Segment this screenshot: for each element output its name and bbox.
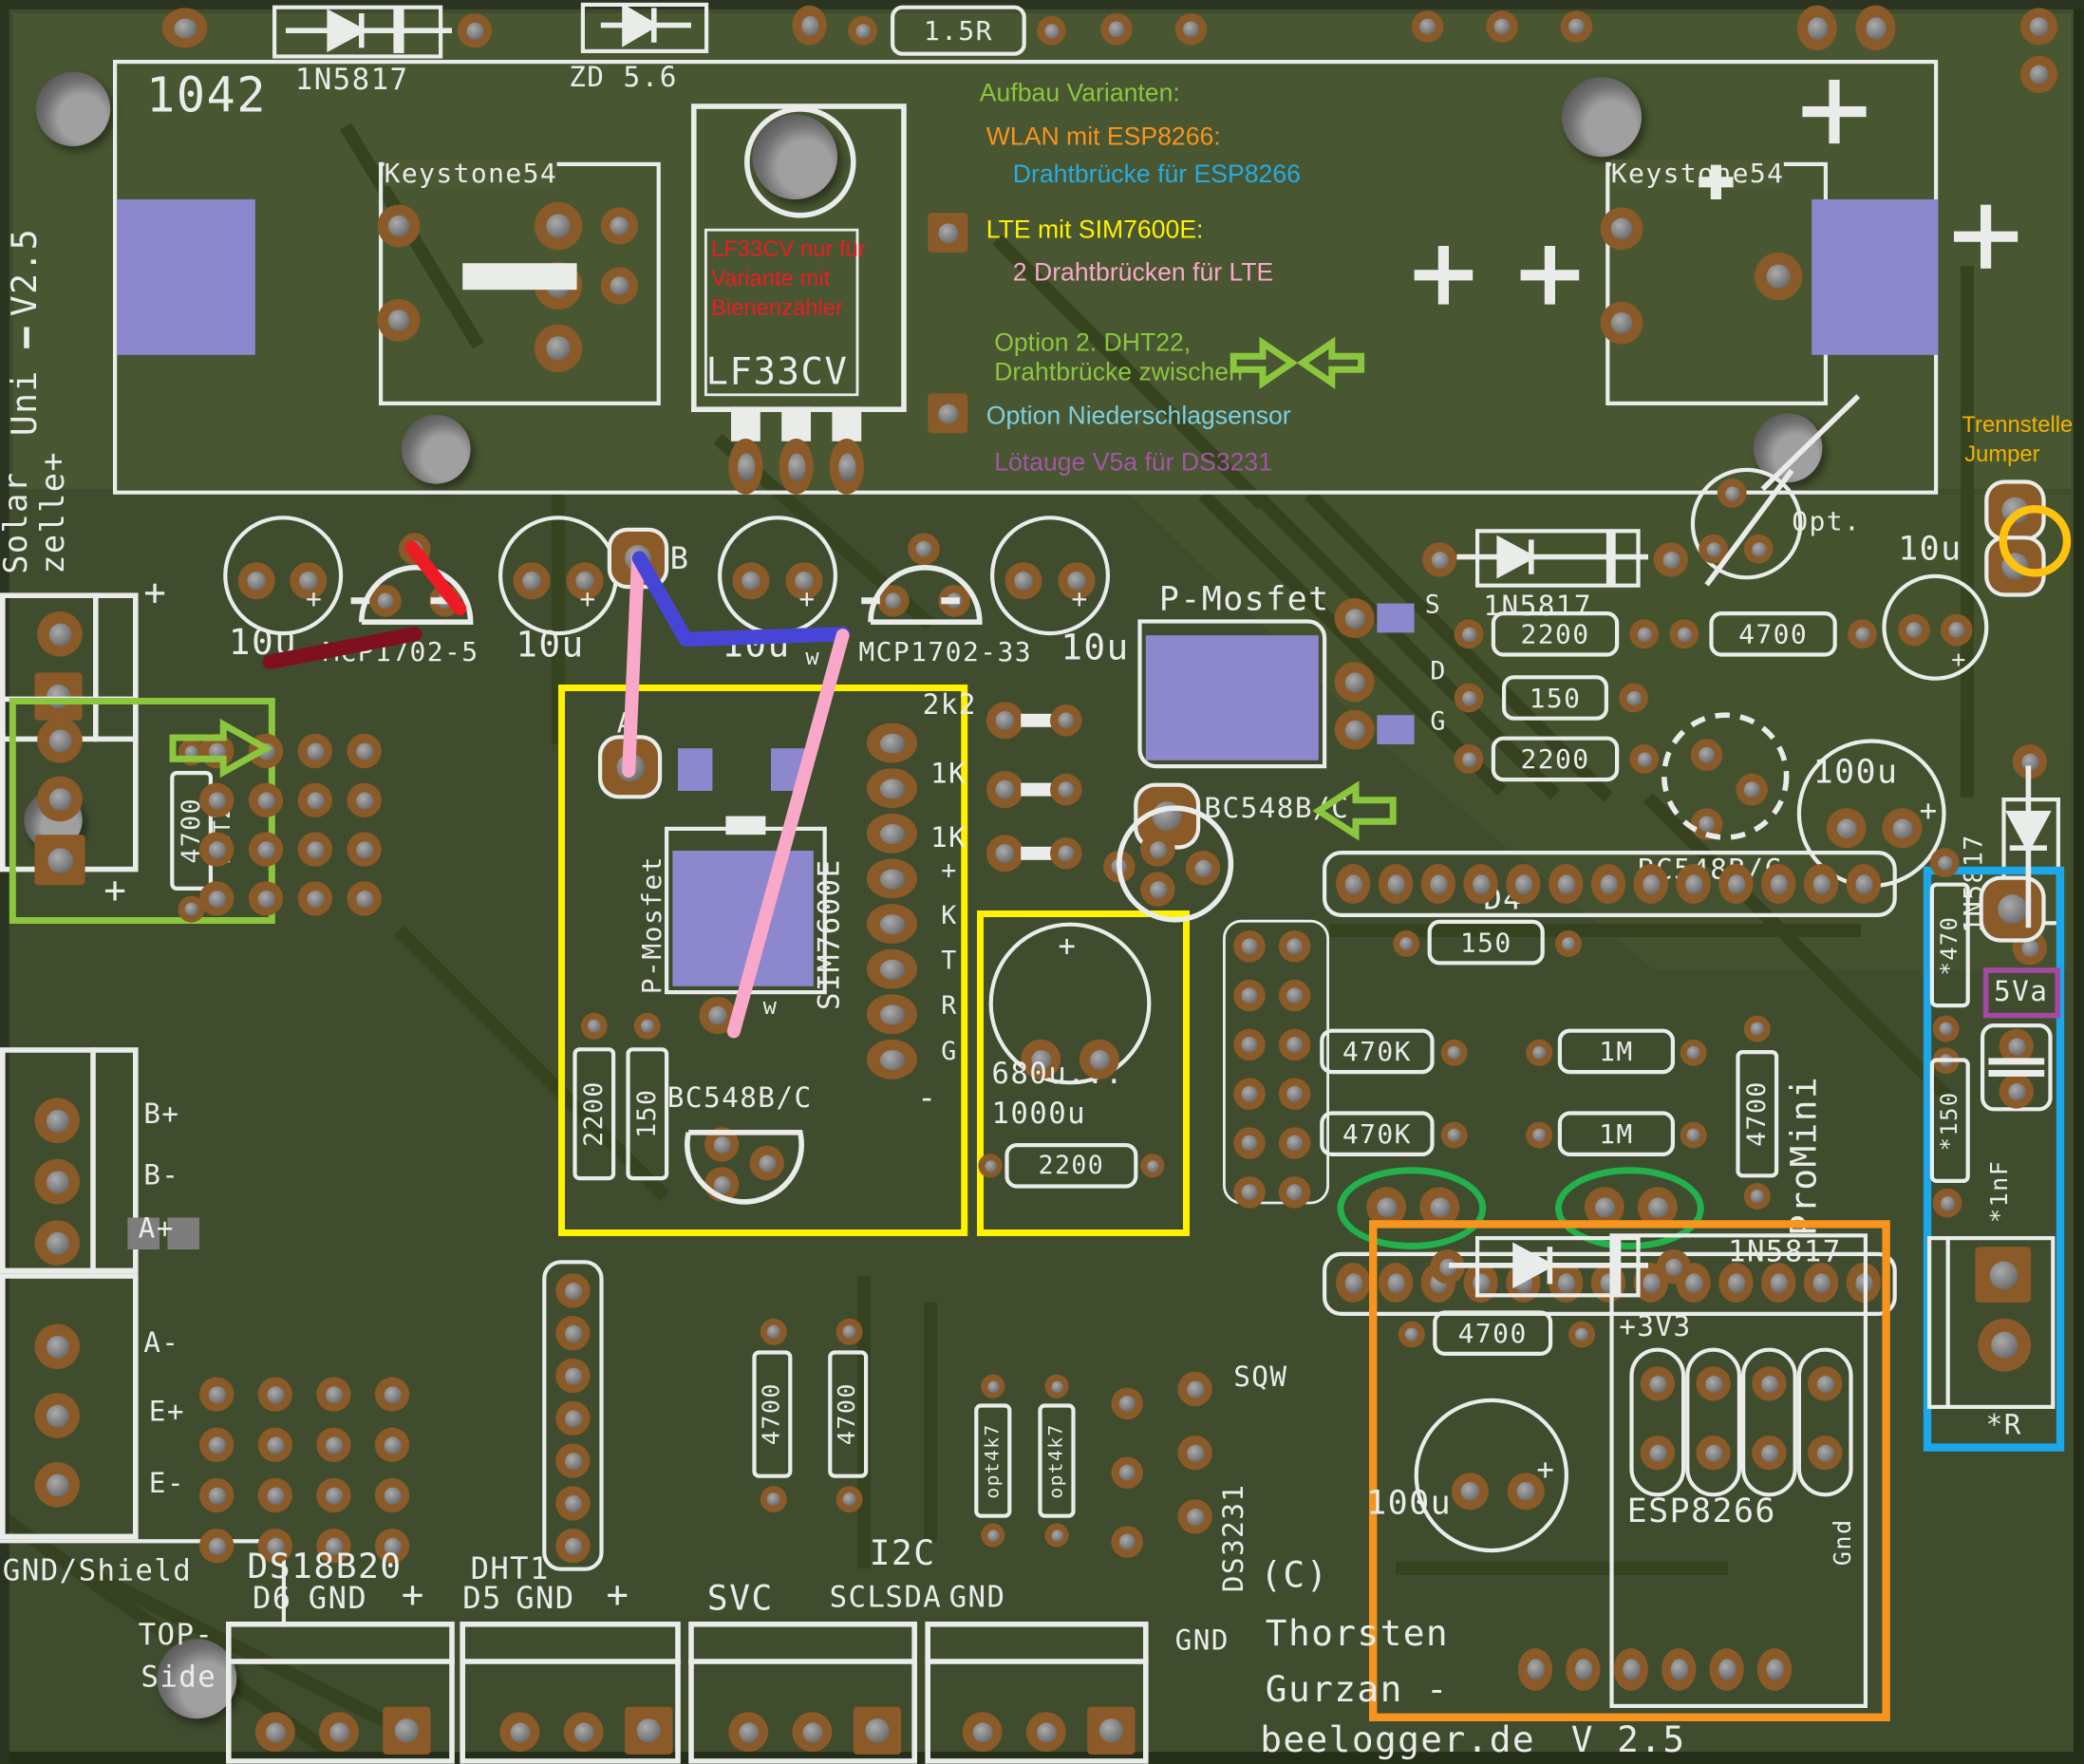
pad	[867, 814, 917, 854]
cap-plus: +	[1071, 585, 1088, 611]
cap-plus: +	[1536, 1456, 1555, 1486]
pad	[908, 533, 940, 565]
pad	[1336, 864, 1370, 904]
copyright-name1: Thorsten	[1266, 1616, 1449, 1652]
resistor-4700: 4700	[1433, 1310, 1552, 1356]
r1k-label: 1K	[930, 760, 967, 788]
svc-label: SVC	[707, 1582, 774, 1616]
pad	[1044, 1523, 1068, 1547]
pad	[1336, 1263, 1370, 1303]
pad	[1601, 207, 1643, 250]
pad	[555, 1359, 590, 1393]
sim-pin-g: G	[941, 1040, 957, 1065]
resistor-label: 4700	[1738, 621, 1808, 647]
pad	[1680, 1040, 1707, 1066]
diode-outline	[581, 3, 708, 53]
resistor-4700-v: 4700	[752, 1350, 792, 1477]
pad	[1393, 930, 1419, 957]
pad	[1752, 1366, 1786, 1400]
pad	[1744, 1016, 1771, 1042]
pad	[2000, 1074, 2034, 1108]
pad	[1761, 864, 1795, 904]
pad	[378, 299, 421, 342]
pad	[1412, 10, 1444, 43]
pad	[399, 533, 431, 565]
resistor-label: 2200	[1039, 1154, 1105, 1179]
pad	[1680, 1122, 1707, 1149]
pad	[1662, 1648, 1696, 1691]
bc548-label-2: BC548B/C	[1204, 795, 1349, 822]
solder-pad-a	[602, 739, 658, 795]
lf33cv-hole	[752, 114, 837, 199]
sim-pin-plus: +	[941, 858, 957, 884]
pad	[258, 1377, 292, 1411]
sda-label: SDA	[885, 1585, 942, 1614]
pad	[1933, 1189, 1962, 1218]
resistor-label: 150	[1530, 685, 1582, 711]
pad	[704, 1127, 739, 1161]
pad	[1455, 619, 1484, 648]
pad	[535, 325, 582, 372]
lf33cv-note-line3: Bienenzähler	[711, 295, 843, 322]
pad	[555, 1316, 590, 1350]
plus-mark	[1699, 165, 1733, 199]
pad	[1186, 851, 1220, 885]
pad	[347, 832, 381, 866]
solar-label: Solar	[0, 462, 32, 574]
pad	[34, 1323, 80, 1369]
pad	[1641, 1366, 1675, 1400]
resistor-2200: 2200	[1492, 611, 1619, 657]
pad	[316, 1478, 350, 1512]
pcb-board: 1.5R 1042 1N5817 ZD 5.6 Keystone54 LF33C…	[0, 0, 2084, 1764]
pad	[1103, 851, 1136, 883]
opt-label: Opt.	[1792, 508, 1861, 535]
pad	[836, 1486, 863, 1512]
keystone-right-label: Keystone54	[1611, 160, 1785, 186]
pad	[760, 1319, 787, 1345]
pad	[258, 1478, 292, 1512]
resistor-150-v: 150	[626, 1047, 668, 1180]
board-name-uni: Uni	[8, 356, 42, 436]
pad	[978, 1154, 1002, 1177]
pad	[928, 393, 967, 433]
resistor-label: 150	[635, 1089, 661, 1138]
pad	[986, 771, 1023, 808]
pad	[867, 949, 917, 989]
pad	[1752, 1436, 1786, 1470]
resistor-2200: 2200	[1492, 737, 1619, 782]
annotation-trennstelle: Trennstelle	[1962, 412, 2073, 439]
pad	[1755, 253, 1802, 300]
pad	[1882, 808, 1922, 848]
pad	[1808, 1366, 1842, 1400]
resistor-label: opt4k7	[1047, 1423, 1066, 1498]
cap-plus: +	[798, 585, 816, 611]
pad	[1629, 619, 1659, 648]
r1k-label: 1K	[930, 824, 967, 852]
pad	[555, 1443, 590, 1477]
terminal-divider	[688, 1659, 917, 1664]
pad	[981, 1375, 1004, 1398]
top-side-label-1: TOP-	[139, 1622, 215, 1651]
pad	[1279, 1078, 1311, 1110]
diode-outline	[1475, 529, 1641, 588]
annotation-loetauge: Lötauge V5a für DS3231	[994, 449, 1272, 479]
pad	[1037, 16, 1066, 46]
pad	[1549, 864, 1583, 904]
pad	[375, 1428, 409, 1462]
plus-mark	[1802, 80, 1866, 143]
pad	[1736, 774, 1768, 806]
pad	[37, 611, 83, 657]
pad	[1140, 872, 1174, 906]
pad	[728, 1712, 768, 1752]
annotation-option-dht22: Option 2. DHT22,	[994, 329, 1191, 359]
pad	[1718, 864, 1753, 904]
cap-plus: +	[1920, 798, 1939, 827]
pad	[1452, 1473, 1489, 1510]
v5a-label: 5Va	[1994, 978, 2048, 1005]
ds18b20-label: DS18B20	[247, 1549, 402, 1584]
smd-component	[1812, 199, 1938, 355]
resistor-1r5: 1.5R	[891, 6, 1026, 56]
d5-plus-label: +	[606, 1576, 629, 1613]
pad	[199, 832, 234, 866]
pad	[347, 881, 381, 915]
annotation-lte: LTE mit SIM7600E:	[986, 216, 1204, 246]
board-number: 1042	[146, 73, 267, 121]
resistor-label: 2200	[1520, 745, 1589, 772]
pad	[1855, 6, 1895, 51]
resistor-label: 150	[1460, 929, 1512, 956]
pad	[1111, 1456, 1143, 1489]
pad	[1050, 774, 1082, 806]
pad	[1279, 930, 1311, 963]
pad	[34, 1462, 80, 1508]
pad	[2013, 744, 2047, 779]
plus-mark	[1521, 246, 1580, 305]
cap-label-10u: 10u	[229, 625, 297, 661]
pad	[513, 562, 550, 599]
scl-label: SCL	[830, 1585, 887, 1614]
pad	[1100, 13, 1133, 46]
pad	[1975, 1247, 2031, 1303]
pad	[1526, 1040, 1552, 1066]
pad	[249, 783, 283, 817]
annotation-wlan: WLAN mit ESP8266:	[986, 123, 1221, 153]
pad	[1279, 1127, 1311, 1159]
pad	[1641, 1436, 1675, 1470]
label-e-minus: E-	[149, 1470, 185, 1497]
smd-component	[1377, 604, 1414, 633]
pad	[499, 1712, 539, 1752]
diode-label: 1N5817	[295, 66, 409, 96]
opt-cap-outline	[1691, 468, 1803, 580]
cap-label-10u: 10u	[1061, 630, 1129, 666]
zelle-label: zelle+	[37, 452, 69, 574]
pad	[1175, 13, 1208, 46]
diode-outline	[1475, 1236, 1641, 1297]
smd-component	[1377, 715, 1414, 744]
pad	[2020, 56, 2057, 93]
resistor-label: 2200	[582, 1080, 608, 1147]
pad-a-label: A	[617, 710, 635, 738]
plus-mark	[1954, 205, 2018, 269]
diode-outline	[272, 6, 442, 59]
pad	[1619, 684, 1648, 713]
pad	[728, 439, 762, 495]
pad	[1555, 930, 1582, 957]
resistor-2200-v: 2200	[573, 1047, 615, 1180]
pad	[1233, 1127, 1266, 1159]
pad	[981, 1523, 1004, 1547]
pad	[986, 835, 1023, 872]
resistor-label: 4700	[1745, 1080, 1771, 1147]
cap-plus: +	[1951, 648, 1967, 672]
mounting-hole	[36, 72, 110, 146]
pad	[298, 783, 332, 817]
pad	[867, 768, 917, 808]
pad	[1526, 1122, 1552, 1149]
pad	[867, 994, 917, 1034]
pmosfet-label: P-Mosfet	[1159, 582, 1330, 615]
pad	[258, 1428, 292, 1462]
pad	[429, 585, 461, 617]
pad	[1566, 1648, 1600, 1691]
annotation-niederschlag: Option Niederschlagsensor	[986, 403, 1291, 432]
pad	[1518, 1648, 1552, 1691]
gnd-shield-label: GND/Shield	[3, 1558, 192, 1587]
silk-line	[0, 1539, 285, 1543]
pad	[316, 1428, 350, 1462]
r2k2-label: 2k2	[923, 691, 977, 719]
annotation-bruecken-lte: 2 Drahtbrücken für LTE	[1013, 259, 1274, 289]
pad	[1177, 1372, 1211, 1406]
pad	[1140, 1154, 1164, 1177]
pad	[963, 1712, 1003, 1752]
resistor-150-opt: *150	[1930, 1058, 1970, 1183]
pad	[1463, 864, 1497, 904]
p3v3-label: +3V3	[1619, 1313, 1691, 1341]
pad	[369, 585, 402, 617]
pad	[760, 1486, 787, 1512]
sim-pin-t: T	[941, 949, 957, 975]
pad	[1591, 864, 1625, 904]
pad	[347, 783, 381, 817]
cap-680u-label: 680u...	[991, 1060, 1124, 1090]
pad	[1933, 1016, 1960, 1042]
board-version: V2.5	[8, 197, 42, 316]
pad	[1691, 739, 1723, 771]
pad	[1699, 535, 1728, 564]
pad	[625, 1707, 672, 1755]
pad	[1847, 864, 1881, 904]
lf33cv-note-line1: LF33CV nur für	[711, 236, 866, 263]
pad	[555, 1401, 590, 1436]
pad	[162, 8, 208, 47]
pad	[1614, 1648, 1648, 1691]
pad	[378, 205, 421, 248]
pad	[1629, 744, 1659, 774]
r-label: *R	[1986, 1412, 2022, 1439]
resistor-label: 4700	[836, 1382, 860, 1445]
diode-label: 1N5817	[1728, 1239, 1842, 1268]
pad	[458, 13, 492, 47]
pad	[1676, 864, 1710, 904]
pad	[867, 723, 917, 763]
promini-pad-block	[1223, 920, 1329, 1205]
pad	[1656, 1249, 1690, 1284]
pad	[1335, 662, 1375, 702]
resistor-label: 470K	[1342, 1038, 1412, 1064]
pad	[238, 562, 275, 599]
pad	[375, 1377, 409, 1411]
resistor-label: 4700	[760, 1382, 784, 1445]
label-e-plus: E+	[149, 1398, 185, 1426]
zoom-scaler: 1.5R 1042 1N5817 ZD 5.6 Keystone54 LF33C…	[0, 0, 2084, 1764]
pad	[1279, 1029, 1311, 1061]
pad	[1757, 1648, 1792, 1691]
pad	[1233, 980, 1266, 1012]
pad	[1233, 1029, 1266, 1061]
pad	[1335, 710, 1375, 750]
pad-w-label: w	[763, 997, 779, 1020]
pad	[1111, 1388, 1143, 1420]
d6-plus-label: +	[402, 1576, 425, 1613]
resistor-opt4k7: opt4k7	[1038, 1403, 1075, 1517]
pin-s-label: S	[1425, 592, 1441, 618]
esp8266-label: ESP8266	[1627, 1494, 1776, 1528]
pad	[1797, 6, 1837, 51]
cap-symbol-bar	[1988, 1070, 2044, 1077]
pad	[1455, 684, 1484, 713]
d6-gnd-label: GND	[309, 1585, 367, 1615]
pad	[1696, 1436, 1730, 1470]
ds3231-label: DS3231	[1220, 1438, 1248, 1592]
pad	[836, 1319, 863, 1345]
mcp1702-33-label: MCP1702-33	[858, 638, 1032, 665]
pad	[319, 1712, 359, 1752]
pin-g-label: G	[1430, 710, 1446, 736]
jumper-highlight-ring	[2000, 505, 2072, 577]
pad	[1087, 1707, 1135, 1755]
resistor-label: 1M	[1599, 1038, 1634, 1064]
sim-pin-k: K	[941, 904, 957, 929]
cap-1000u-label: 1000u	[991, 1100, 1086, 1130]
copyright-c: (C)	[1260, 1558, 1328, 1594]
pad	[564, 1712, 604, 1752]
pad	[1669, 619, 1699, 648]
resistor-label: 2200	[1520, 621, 1589, 647]
smd-component	[771, 748, 805, 791]
pad	[1848, 619, 1877, 648]
pad	[1044, 1375, 1068, 1398]
pad	[34, 1220, 80, 1266]
annotation-bruecke-esp: Drahtbrücke für ESP8266	[1013, 160, 1301, 190]
pad	[581, 1013, 608, 1040]
pad	[1804, 864, 1838, 904]
resistor-1m: 1M	[1558, 1029, 1675, 1075]
resistor-label: 1M	[1599, 1120, 1634, 1147]
cap-plus: +	[1058, 933, 1077, 963]
terminal-divider	[90, 1047, 96, 1273]
resistor-label: opt4k7	[984, 1423, 1003, 1498]
pad	[199, 1377, 234, 1411]
sim-pin-minus: -	[917, 1082, 938, 1115]
pad	[1441, 1040, 1468, 1066]
pad	[1177, 1499, 1211, 1533]
pad	[792, 6, 826, 46]
pmosfet2-body	[1146, 635, 1319, 760]
i2c-gnd-label: GND	[949, 1585, 1006, 1614]
pad	[1898, 614, 1930, 647]
cap-label-10u: 10u	[1898, 532, 1962, 565]
pad	[555, 1486, 590, 1520]
bc548-label-1: BC548B/C	[667, 1084, 813, 1112]
resistor-150: 150	[1502, 675, 1608, 721]
pad	[535, 202, 582, 250]
pad	[1930, 848, 1960, 877]
pad	[255, 1712, 295, 1752]
cap-label-10u: 10u	[722, 628, 790, 664]
pad	[249, 734, 283, 768]
pad	[732, 562, 769, 599]
pad	[1233, 1176, 1266, 1209]
pmosfet-label-vertical: P-Mosfet	[638, 830, 665, 995]
annotation-jumper: Jumper	[1964, 441, 2039, 468]
pad	[1506, 864, 1540, 904]
pad	[1422, 542, 1456, 576]
pad	[1421, 864, 1455, 904]
pad	[1691, 808, 1723, 840]
resistor-4700: 4700	[1709, 611, 1836, 657]
lf33cv-leg	[731, 406, 760, 441]
pad	[867, 858, 917, 898]
copyright-name2: Gurzan -	[1266, 1672, 1449, 1708]
divider	[24, 327, 29, 347]
pad	[1379, 864, 1413, 904]
pad	[1744, 1183, 1771, 1210]
annotation-bruecke-zwischen: Drahtbrücke zwischen	[994, 359, 1243, 388]
pad	[830, 439, 864, 495]
pad	[1718, 479, 1747, 508]
pad	[938, 585, 970, 617]
resistor-label: *470	[1939, 915, 1962, 975]
pad	[1978, 1319, 2031, 1372]
pad	[779, 439, 813, 495]
pad	[199, 783, 234, 817]
pad	[1744, 535, 1774, 564]
resistor-label: *150	[1939, 1091, 1962, 1151]
gnd-label: GND	[1175, 1627, 1230, 1655]
pad	[316, 1377, 350, 1411]
copyright-version: V 2.5	[1571, 1722, 1686, 1758]
resistor-2200: 2200	[1004, 1143, 1137, 1189]
pad	[347, 734, 381, 768]
pad	[1601, 302, 1643, 345]
pad	[1568, 1322, 1595, 1348]
resistor-label: 470K	[1342, 1120, 1412, 1147]
pad	[867, 904, 917, 944]
pad	[1634, 864, 1668, 904]
pad	[34, 1393, 80, 1438]
pad	[928, 213, 967, 253]
resistor-470k: 470K	[1320, 1111, 1434, 1156]
pad	[199, 1529, 234, 1563]
d5-label: D5	[462, 1585, 502, 1615]
sim7600-label: SIM7600E	[817, 744, 846, 1010]
